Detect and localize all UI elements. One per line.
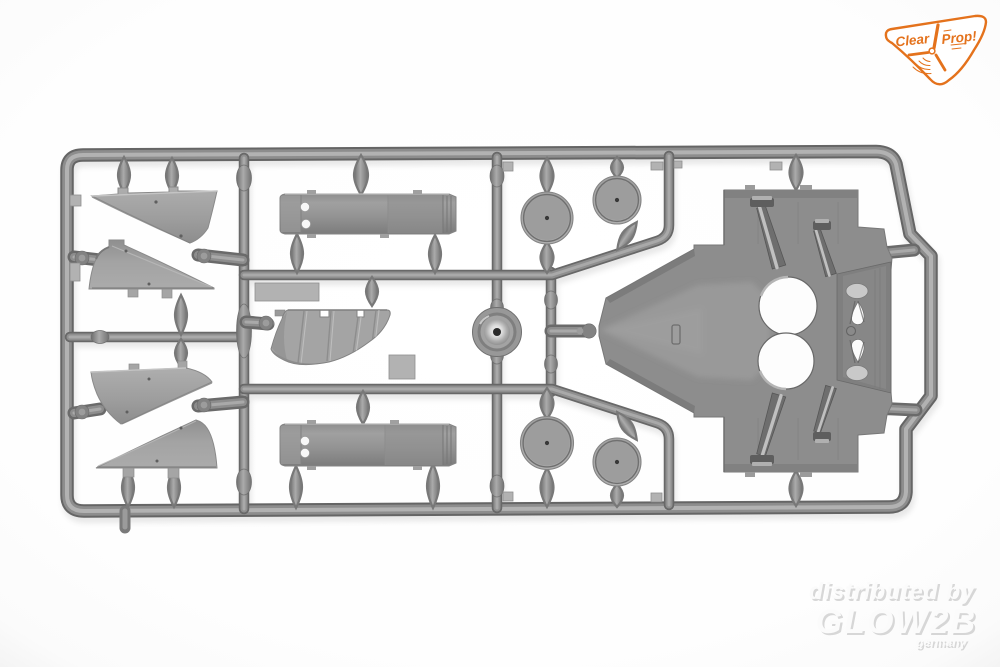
svg-text:distributed by: distributed by [809,578,975,604]
svg-text:germany: germany [915,635,967,649]
